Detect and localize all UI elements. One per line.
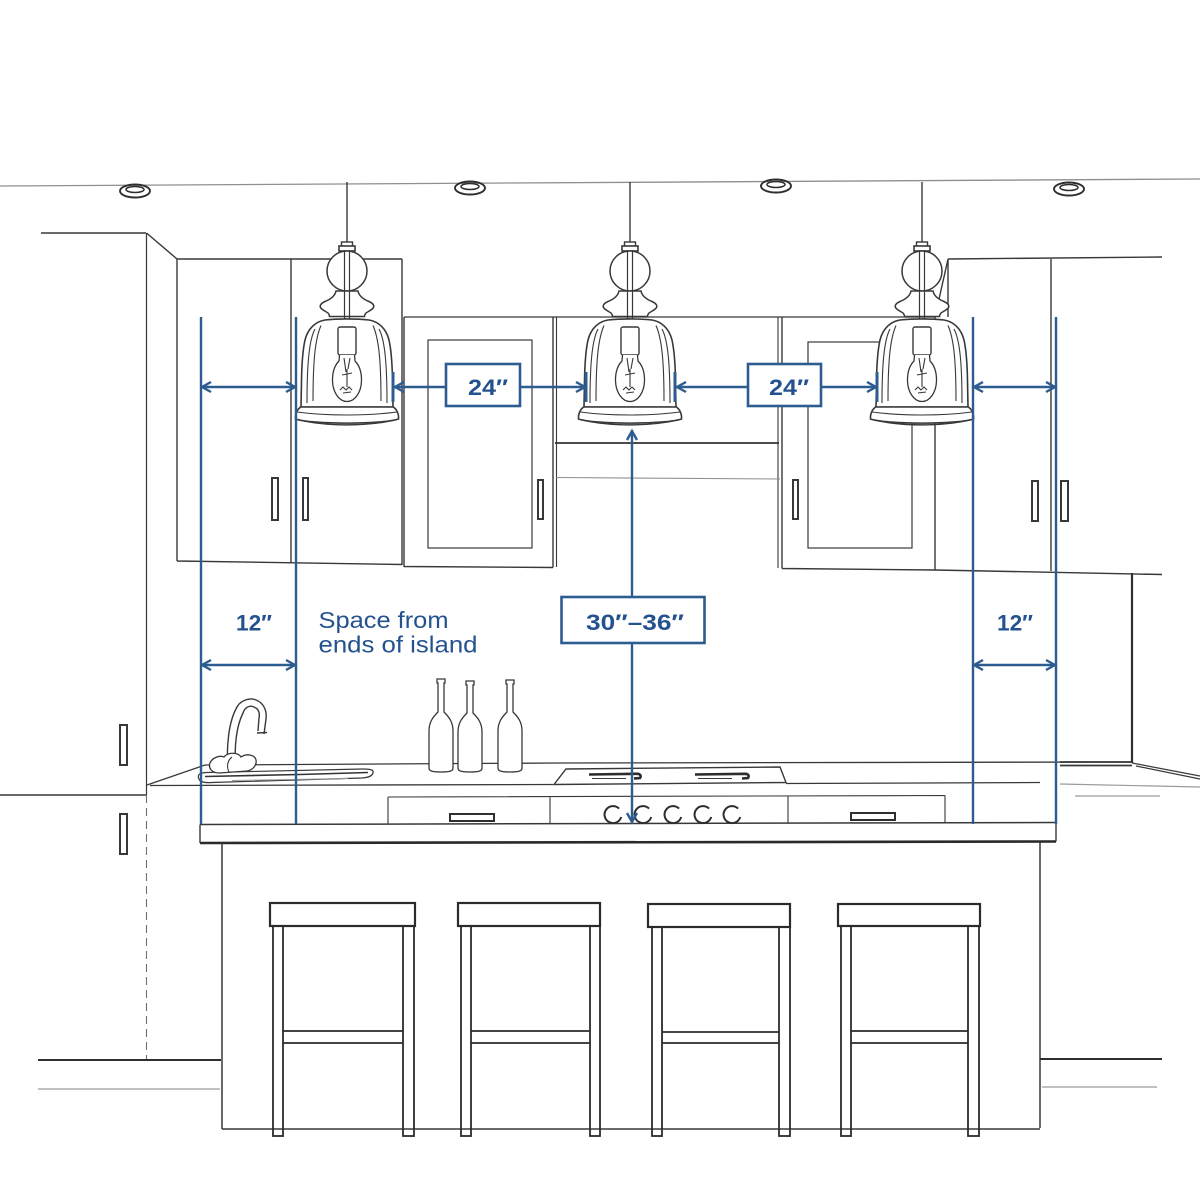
svg-text:24″: 24″ bbox=[769, 375, 810, 400]
svg-text:ends of island: ends of island bbox=[319, 632, 478, 658]
svg-text:24″: 24″ bbox=[468, 375, 509, 400]
svg-text:30″–36″: 30″–36″ bbox=[586, 610, 685, 635]
svg-text:12″: 12″ bbox=[236, 611, 272, 636]
svg-text:12″: 12″ bbox=[997, 611, 1033, 636]
svg-text:Space from: Space from bbox=[319, 607, 449, 633]
